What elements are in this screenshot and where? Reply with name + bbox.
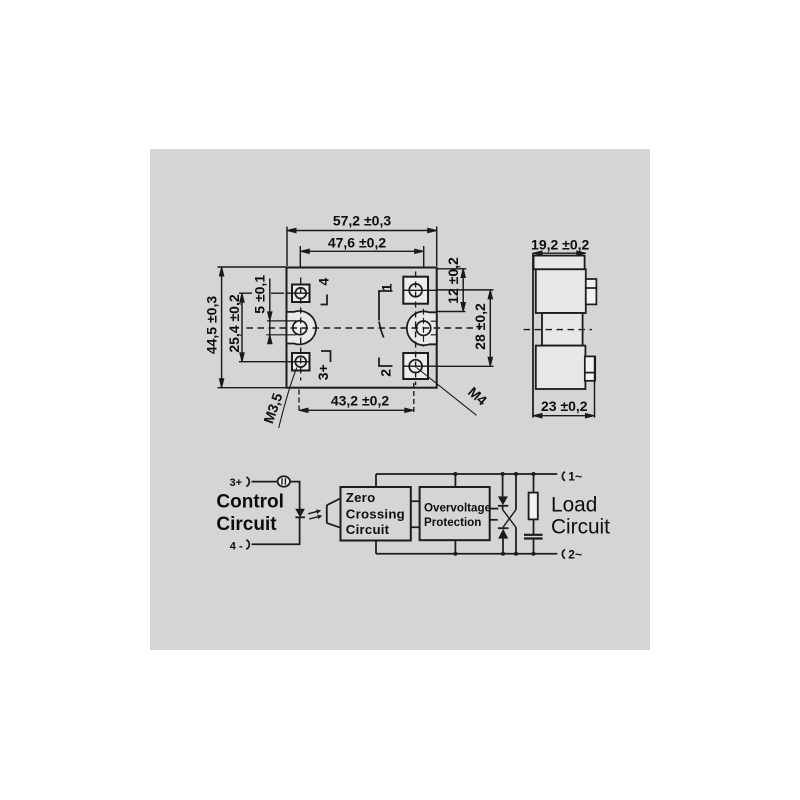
svg-text:25,4 ±0,2: 25,4 ±0,2	[226, 294, 242, 352]
svg-text:Control: Control	[216, 492, 284, 513]
svg-text:5 ±0,1: 5 ±0,1	[252, 275, 268, 314]
svg-text:Overvoltage: Overvoltage	[424, 502, 492, 515]
svg-text:3+: 3+	[315, 364, 331, 380]
svg-text:Circuit: Circuit	[346, 522, 390, 537]
svg-text:2~: 2~	[568, 547, 582, 561]
svg-text:19,2 ±0,2: 19,2 ±0,2	[531, 237, 589, 253]
svg-text:4 -: 4 -	[230, 540, 243, 552]
svg-text:1: 1	[379, 283, 395, 291]
svg-text:12 ±0,2: 12 ±0,2	[445, 257, 461, 304]
svg-text:57,2 ±0,3: 57,2 ±0,3	[333, 213, 391, 229]
svg-text:Circuit: Circuit	[551, 516, 610, 539]
svg-text:4: 4	[315, 278, 331, 286]
svg-text:Zero: Zero	[346, 490, 376, 505]
svg-text:Circuit: Circuit	[216, 514, 277, 535]
svg-text:2: 2	[377, 369, 393, 377]
svg-text:1~: 1~	[568, 470, 582, 484]
svg-text:3+: 3+	[230, 477, 243, 489]
svg-text:Load: Load	[551, 494, 597, 517]
svg-text:28 ±0,2: 28 ±0,2	[472, 303, 488, 350]
svg-text:23 ±0,2: 23 ±0,2	[541, 398, 588, 414]
svg-text:43,2 ±0,2: 43,2 ±0,2	[331, 393, 389, 409]
svg-text:47,6 ±0,2: 47,6 ±0,2	[328, 234, 386, 250]
svg-text:Crossing: Crossing	[346, 507, 405, 522]
svg-text:44,5 ±0,3: 44,5 ±0,3	[204, 296, 220, 354]
svg-text:Protection: Protection	[424, 516, 481, 529]
